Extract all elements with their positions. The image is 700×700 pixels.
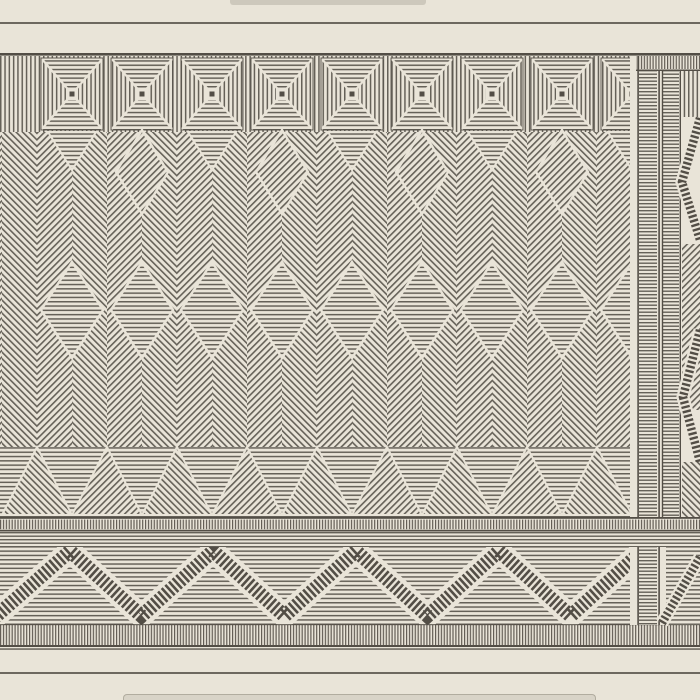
page-rule-bottom (0, 672, 700, 674)
herringbone-field (0, 132, 2, 447)
scanned-page (0, 0, 700, 700)
fringe-band (0, 625, 700, 645)
adjacent-plate-edge-bottom (123, 694, 596, 700)
herringbone-field (2, 132, 37, 447)
engraving-plate (0, 0, 700, 700)
